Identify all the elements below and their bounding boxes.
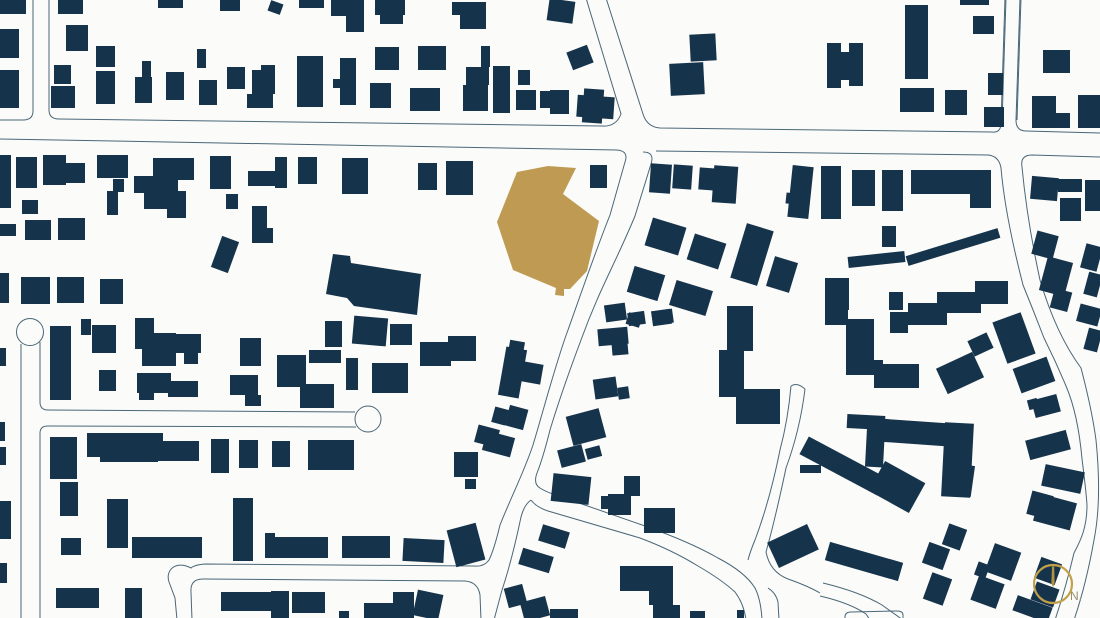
svg-text:N.: N. xyxy=(1070,589,1082,603)
